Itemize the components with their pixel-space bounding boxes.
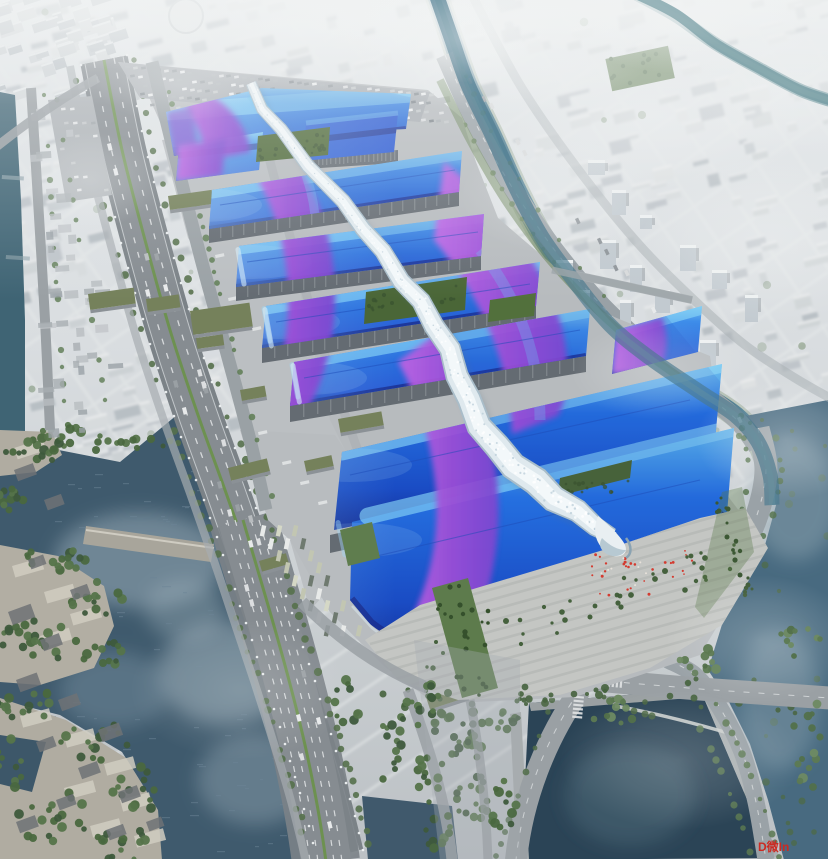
svg-text:D微In: D微In [758, 839, 789, 854]
